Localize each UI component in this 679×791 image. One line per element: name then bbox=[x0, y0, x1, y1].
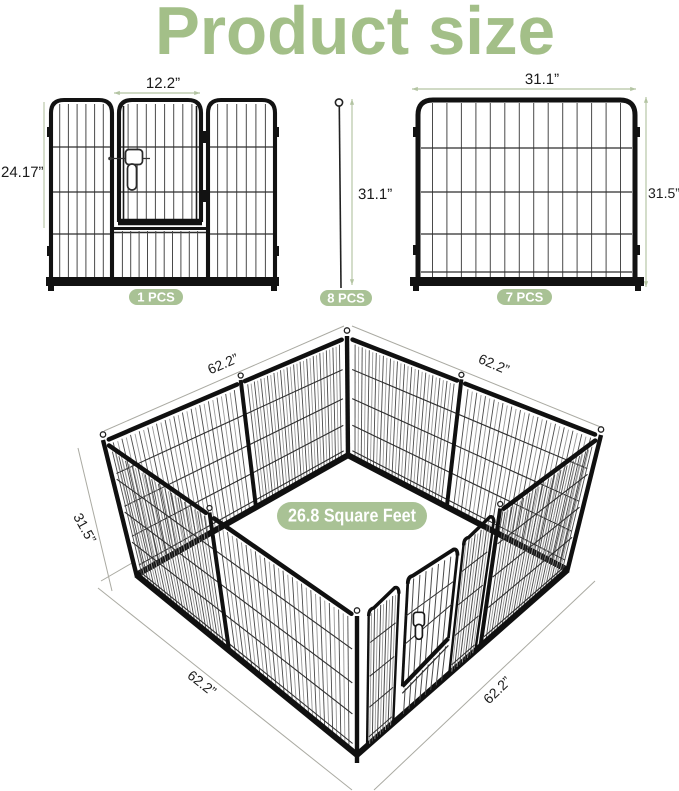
svg-text:1 PCS: 1 PCS bbox=[137, 290, 175, 305]
svg-text:62.2”: 62.2” bbox=[476, 350, 512, 377]
svg-text:7 PCS: 7 PCS bbox=[506, 290, 544, 305]
svg-text:62.2”: 62.2” bbox=[184, 667, 219, 699]
svg-text:24.17”: 24.17” bbox=[1, 164, 44, 181]
svg-text:12.2”: 12.2” bbox=[146, 75, 180, 92]
svg-text:Product size: Product size bbox=[155, 0, 555, 69]
svg-text:31.1”: 31.1” bbox=[525, 71, 559, 88]
svg-text:62.2”: 62.2” bbox=[480, 673, 514, 707]
svg-text:31.5”: 31.5” bbox=[648, 185, 679, 201]
svg-text:8 PCS: 8 PCS bbox=[327, 291, 365, 306]
svg-text:26.8 Square Feet: 26.8 Square Feet bbox=[288, 505, 416, 526]
svg-text:31.5”: 31.5” bbox=[70, 510, 100, 546]
svg-text:31.1”: 31.1” bbox=[358, 186, 392, 203]
